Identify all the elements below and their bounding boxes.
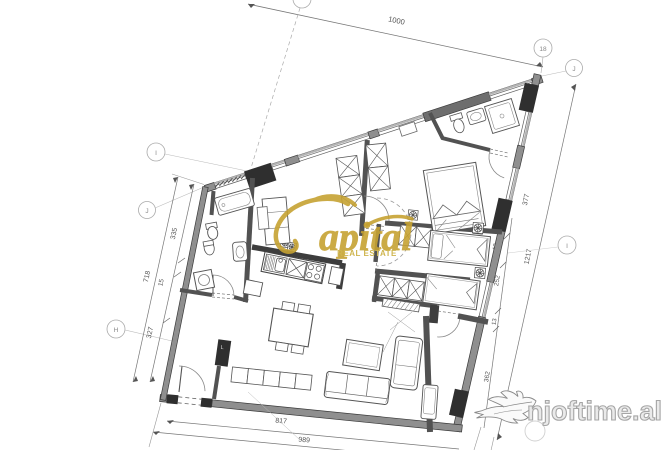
svg-text:H: H: [114, 327, 119, 334]
svg-text:REAL ESTATE: REAL ESTATE: [337, 249, 397, 258]
svg-text:J: J: [572, 66, 575, 73]
svg-text:18: 18: [539, 46, 547, 53]
svg-text:I: I: [566, 243, 568, 250]
svg-text:989: 989: [298, 436, 310, 444]
svg-text:njoftime.al: njoftime.al: [527, 396, 662, 426]
svg-text:I: I: [155, 150, 157, 157]
svg-text:J: J: [145, 208, 148, 215]
